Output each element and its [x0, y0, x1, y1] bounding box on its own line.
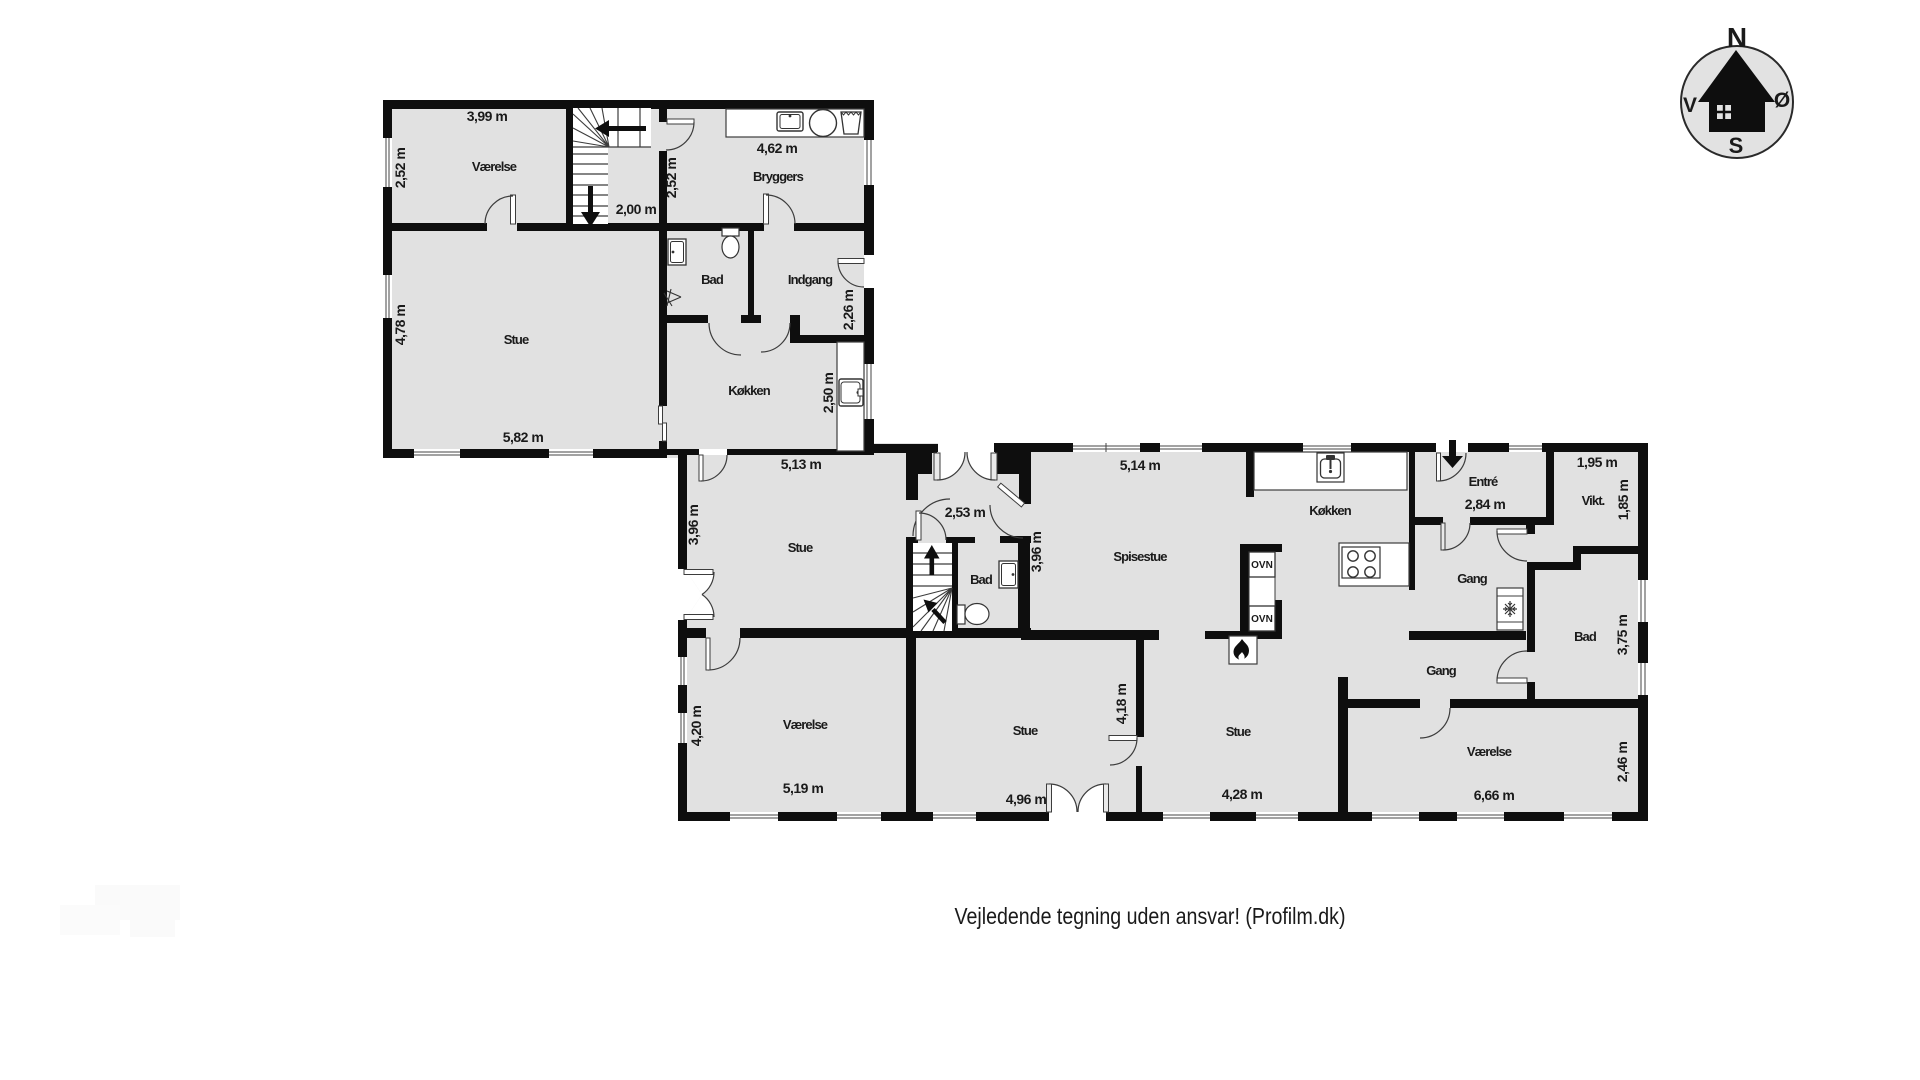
svg-text:Vejledende tegning uden ansvar: Vejledende tegning uden ansvar! (Profilm…	[955, 903, 1346, 929]
svg-text:4,18 m: 4,18 m	[1113, 684, 1129, 725]
svg-text:1,95 m: 1,95 m	[1577, 454, 1618, 470]
svg-text:Stue: Stue	[504, 332, 529, 347]
svg-text:Ø: Ø	[1774, 89, 1790, 112]
svg-text:S: S	[1729, 133, 1744, 158]
svg-text:Gang: Gang	[1457, 571, 1488, 586]
svg-text:2,53 m: 2,53 m	[945, 504, 986, 520]
svg-text:Bad: Bad	[970, 572, 993, 587]
svg-text:Køkken: Køkken	[728, 383, 771, 398]
svg-text:6,66 m: 6,66 m	[1474, 787, 1515, 803]
svg-text:Stue: Stue	[1226, 724, 1251, 739]
svg-text:5,19 m: 5,19 m	[783, 780, 824, 796]
svg-text:5,14 m: 5,14 m	[1120, 457, 1161, 473]
svg-text:2,52 m: 2,52 m	[392, 148, 408, 189]
svg-text:2,50 m: 2,50 m	[820, 373, 836, 414]
svg-text:5,13 m: 5,13 m	[781, 456, 822, 472]
svg-text:Værelse: Værelse	[472, 159, 517, 174]
svg-text:Entré: Entré	[1469, 474, 1498, 489]
svg-text:Spisestue: Spisestue	[1113, 549, 1167, 564]
svg-text:3,96 m: 3,96 m	[1028, 532, 1044, 573]
svg-text:Bryggers: Bryggers	[753, 169, 804, 184]
svg-text:Køkken: Køkken	[1309, 503, 1352, 518]
svg-text:Bad: Bad	[1574, 629, 1597, 644]
svg-text:2,84 m: 2,84 m	[1465, 496, 1506, 512]
svg-text:1,85 m: 1,85 m	[1615, 480, 1631, 521]
svg-text:Indgang: Indgang	[788, 272, 833, 287]
svg-text:2,26 m: 2,26 m	[840, 290, 856, 331]
svg-text:Værelse: Værelse	[783, 717, 828, 732]
svg-text:4,62 m: 4,62 m	[757, 140, 798, 156]
svg-text:2,52 m: 2,52 m	[663, 158, 679, 199]
svg-text:OVN: OVN	[1251, 614, 1273, 625]
svg-text:Gang: Gang	[1426, 663, 1457, 678]
svg-text:Bad: Bad	[701, 272, 724, 287]
svg-text:Stue: Stue	[788, 540, 813, 555]
svg-text:3,75 m: 3,75 m	[1614, 615, 1630, 656]
svg-text:4,28 m: 4,28 m	[1222, 786, 1263, 802]
svg-text:Værelse: Værelse	[1467, 744, 1512, 759]
svg-text:Vikt.: Vikt.	[1582, 493, 1605, 508]
svg-text:3,99 m: 3,99 m	[467, 108, 508, 124]
svg-text:5,82 m: 5,82 m	[503, 429, 544, 445]
svg-text:V: V	[1683, 94, 1697, 117]
svg-text:4,96 m: 4,96 m	[1006, 791, 1047, 807]
svg-text:OVN: OVN	[1251, 560, 1273, 571]
svg-text:4,78 m: 4,78 m	[392, 305, 408, 346]
svg-text:N: N	[1727, 22, 1747, 53]
svg-text:4,20 m: 4,20 m	[688, 706, 704, 747]
svg-text:2,46 m: 2,46 m	[1614, 742, 1630, 783]
svg-text:Stue: Stue	[1013, 723, 1038, 738]
svg-text:2,00 m: 2,00 m	[616, 201, 657, 217]
svg-text:3,96 m: 3,96 m	[685, 505, 701, 546]
